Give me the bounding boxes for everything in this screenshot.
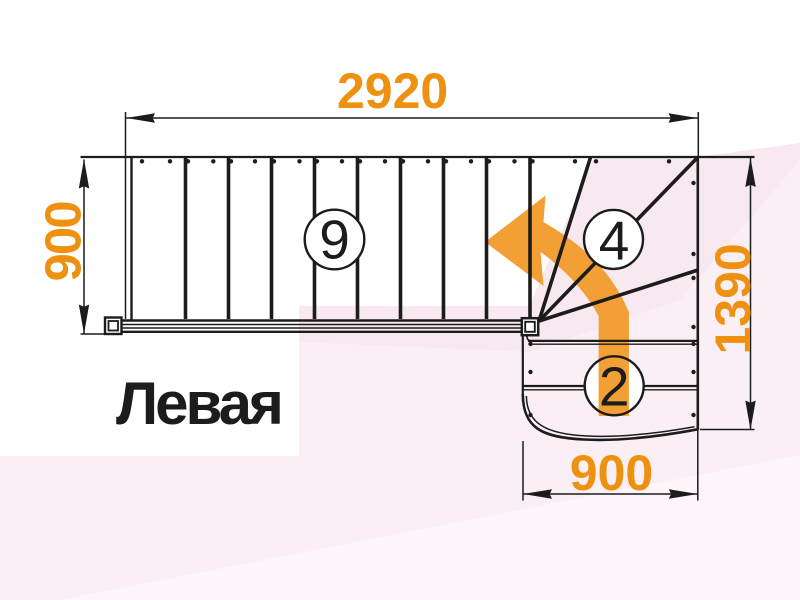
svg-text:2920: 2920 [337,63,448,119]
svg-text:4: 4 [599,210,630,272]
svg-text:2: 2 [599,355,630,417]
svg-text:900: 900 [570,445,653,501]
svg-text:1390: 1390 [705,243,761,354]
svg-text:Левая: Левая [116,370,281,437]
svg-text:900: 900 [35,202,92,282]
svg-text:9: 9 [319,208,350,270]
